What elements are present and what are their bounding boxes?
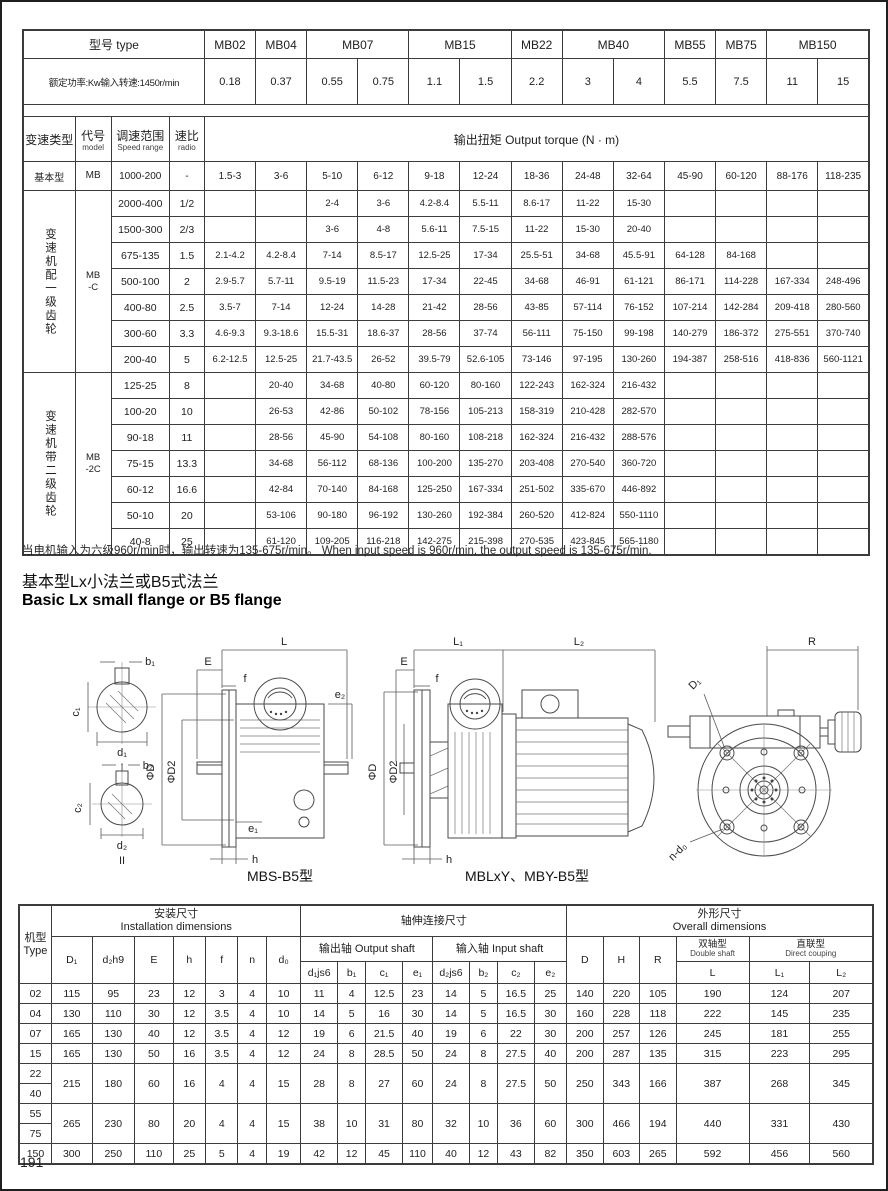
dimension-value-cell: 12 (337, 1144, 365, 1165)
dimension-value-cell: 181 (749, 1024, 810, 1044)
double-shaft-header: 双轴型 Double shaft (676, 937, 749, 962)
torque-value-cell: 248-496 (818, 269, 869, 295)
torque-value-cell: 260-520 (511, 503, 562, 529)
torque-value-cell: 9.5-19 (307, 269, 358, 295)
torque-value-cell: 37-74 (460, 321, 511, 347)
torque-value-cell: 412-824 (562, 503, 613, 529)
dim-label-f-v2: f (435, 673, 439, 685)
dimension-value-cell: 124 (749, 984, 810, 1004)
torque-value-cell: 12.5-25 (256, 347, 307, 373)
dim-label-e2: e₂ (335, 689, 345, 701)
torque-value-cell: 370-740 (818, 321, 869, 347)
ratio-cell: 13.3 (169, 451, 204, 477)
dimension-value-cell: 3.5 (206, 1044, 238, 1064)
torque-value-cell: 26-53 (256, 399, 307, 425)
dimension-value-cell: 40 (433, 1144, 470, 1165)
torque-value-cell: 50-102 (358, 399, 409, 425)
torque-value-cell: 107-214 (664, 295, 715, 321)
col-header-d2js6: d₂js6 (433, 962, 470, 984)
technical-drawings: b₁ c₁ d₁ I b₂ c₂ d₂ II (22, 632, 870, 890)
torque-value-cell: 108-218 (460, 425, 511, 451)
dim-label-h-v2: h (446, 854, 452, 866)
torque-value-cell: 84-168 (358, 477, 409, 503)
dimension-value-cell: 27.5 (498, 1044, 535, 1064)
torque-value-cell: 15.5-31 (307, 321, 358, 347)
torque-value-cell: 86-171 (664, 269, 715, 295)
dim-label-d1: d₁ (117, 747, 127, 759)
torque-value-cell (664, 425, 715, 451)
dimension-value-cell: 27 (366, 1064, 403, 1104)
dimension-value-cell: 12 (173, 1004, 205, 1024)
dimension-value-cell: 228 (603, 1004, 640, 1024)
dimension-value-cell: 82 (534, 1144, 566, 1165)
torque-value-cell: 42-86 (307, 399, 358, 425)
col-header-c2: c₂ (498, 962, 535, 984)
torque-value-cell: 96-192 (358, 503, 409, 529)
dim-label-E-v1: E (204, 656, 211, 668)
dim-label-e1: e₁ (248, 823, 258, 835)
torque-value-cell: 2-4 (307, 191, 358, 217)
dimension-value-cell: 160 (567, 1004, 604, 1024)
speed-range-cell: 100-20 (111, 399, 169, 425)
dimension-value-cell: 5 (337, 1004, 365, 1024)
model-type-cell: 07 (19, 1024, 51, 1044)
dimension-value-cell: 28 (301, 1064, 338, 1104)
section-heading-en: Basic Lx small flange or B5 flange (22, 592, 282, 610)
dimension-value-cell: 22 (498, 1024, 535, 1044)
dimension-value-cell: 4 (238, 1104, 266, 1144)
torque-value-cell: 34-68 (256, 451, 307, 477)
dim-label-E-v2: E (400, 656, 407, 668)
torque-value-cell: 75-150 (562, 321, 613, 347)
torque-value-cell: 550-1110 (613, 503, 664, 529)
model-header: MB55 (664, 30, 715, 59)
torque-value-cell: 142-284 (716, 295, 767, 321)
torque-value-cell: 560-1121 (818, 347, 869, 373)
torque-value-cell (818, 399, 869, 425)
model-type-header: 型号 type (23, 30, 204, 59)
dimension-value-cell: 265 (51, 1104, 92, 1144)
dimension-value-cell: 300 (51, 1144, 92, 1165)
speed-range-cell: 300-60 (111, 321, 169, 347)
shaft-section-1-drawing: b₁ c₁ d₁ I (70, 656, 156, 774)
torque-value-cell (818, 243, 869, 269)
torque-value-cell (204, 503, 255, 529)
code-header-en: model (76, 144, 111, 152)
code-header-cn: 代号 (76, 127, 111, 144)
torque-value-cell: 5.7-11 (256, 269, 307, 295)
dimension-value-cell: 223 (749, 1044, 810, 1064)
dimension-value-cell: 126 (640, 1024, 677, 1044)
torque-value-cell (716, 373, 767, 399)
dim-label-d2: d₂ (117, 840, 127, 852)
dimension-value-cell: 28.5 (366, 1044, 403, 1064)
torque-value-cell (818, 425, 869, 451)
power-cell: 5.5 (664, 59, 715, 105)
output-shaft-header: 输出轴 Output shaft (301, 937, 433, 962)
dim-label-f-v1: f (243, 673, 247, 685)
torque-value-cell (716, 425, 767, 451)
ratio-cell: 2/3 (169, 217, 204, 243)
torque-value-cell (716, 451, 767, 477)
dimension-value-cell: 40 (135, 1024, 174, 1044)
torque-value-cell: 251-502 (511, 477, 562, 503)
power-cell: 7.5 (716, 59, 767, 105)
dimension-value-cell: 207 (810, 984, 873, 1004)
section-label-text: 变速机配一级齿轮 (44, 228, 56, 336)
dimension-value-cell: 118 (640, 1004, 677, 1024)
torque-value-cell (204, 425, 255, 451)
torque-value-cell (716, 503, 767, 529)
model-header: MB02 (204, 30, 255, 59)
ratio-cell: 10 (169, 399, 204, 425)
col-header-h: h (173, 937, 205, 984)
section-label: 变速机带二级齿轮 (23, 373, 75, 556)
dimension-value-cell: 3.5 (206, 1004, 238, 1024)
torque-value-cell: 17-34 (460, 243, 511, 269)
speed-type-header: 变速类型 (23, 117, 75, 162)
torque-value-cell: 162-324 (511, 425, 562, 451)
torque-value-cell: 20-40 (256, 373, 307, 399)
torque-value-cell (818, 217, 869, 243)
torque-value-cell: 100-200 (409, 451, 460, 477)
ratio-cell: 20 (169, 503, 204, 529)
model-header: MB150 (767, 30, 869, 59)
torque-value-cell: 32-64 (613, 162, 664, 191)
dimension-value-cell: 15 (266, 1104, 301, 1144)
torque-value-cell: 61-121 (613, 269, 664, 295)
ratio-cell: 1.5 (169, 243, 204, 269)
dimension-value-cell: 11 (301, 984, 338, 1004)
dimension-value-cell: 4 (206, 1064, 238, 1104)
dimension-value-cell: 345 (810, 1064, 873, 1104)
dimension-value-cell: 40 (402, 1024, 432, 1044)
col-header-n: n (238, 937, 266, 984)
direct-coupling-en: Direct couping (750, 950, 872, 958)
torque-value-cell: 114-228 (716, 269, 767, 295)
torque-value-cell: 4-8 (358, 217, 409, 243)
dimension-value-cell: 145 (749, 1004, 810, 1024)
col-header-D1: D₁ (51, 937, 92, 984)
torque-value-cell: 78-156 (409, 399, 460, 425)
dimension-value-cell: 4 (238, 1044, 266, 1064)
dim-label-L: L (281, 636, 287, 648)
table-spacer (23, 105, 869, 117)
model-header: MB07 (307, 30, 409, 59)
torque-value-cell: 12.5-25 (409, 243, 460, 269)
torque-value-cell: 84-168 (716, 243, 767, 269)
dimension-value-cell: 440 (676, 1104, 749, 1144)
dimension-value-cell: 180 (92, 1064, 135, 1104)
dimension-value-cell: 3.5 (206, 1024, 238, 1044)
torque-value-cell: 158-319 (511, 399, 562, 425)
torque-value-cell: 15-30 (562, 217, 613, 243)
dimension-value-cell: 115 (51, 984, 92, 1004)
col-header-d2h9: d₂h9 (92, 937, 135, 984)
section-code: MB -2C (75, 373, 111, 556)
speed-note: 当电机输入为六级960r/min时，输出转速为135-675r/min。 Whe… (22, 542, 652, 558)
torque-value-cell: 7.5-15 (460, 217, 511, 243)
col-header-e2: e₂ (534, 962, 566, 984)
dimension-value-cell: 80 (135, 1104, 174, 1144)
col-header-H: H (603, 937, 640, 984)
dimension-value-cell: 130 (92, 1024, 135, 1044)
dimension-value-cell: 343 (603, 1064, 640, 1104)
model-type-cell: 75 (19, 1124, 51, 1144)
catalog-page: 型号 type MB02 MB04 MB07 MB15 MB22 MB40 MB… (0, 0, 888, 1191)
dimension-value-cell: 10 (266, 1004, 301, 1024)
section-label: 变速机配一级齿轮 (23, 191, 75, 373)
dimension-value-cell: 45 (366, 1144, 403, 1165)
dim-label-phiD2-v2: ΦD2 (388, 761, 400, 784)
torque-value-cell: 60-120 (409, 373, 460, 399)
dimension-value-cell: 12.5 (366, 984, 403, 1004)
range-header-en: Speed range (112, 144, 169, 152)
speed-range-cell: 200-40 (111, 347, 169, 373)
torque-value-cell: 360-720 (613, 451, 664, 477)
section-code: MB (75, 162, 111, 191)
dimension-value-cell: 60 (534, 1104, 566, 1144)
speed-range-cell: 125-25 (111, 373, 169, 399)
torque-value-cell: 25.5-51 (511, 243, 562, 269)
torque-value-cell (716, 477, 767, 503)
power-cell: 0.75 (358, 59, 409, 105)
section-label-text: 变速机带二级齿轮 (44, 410, 56, 518)
torque-value-cell: 22-45 (460, 269, 511, 295)
torque-value-cell: 192-384 (460, 503, 511, 529)
dimension-value-cell: 21.5 (366, 1024, 403, 1044)
torque-value-cell (664, 503, 715, 529)
torque-value-cell: 216-432 (613, 373, 664, 399)
model-type-cell: 40 (19, 1084, 51, 1104)
torque-value-cell: 11-22 (511, 217, 562, 243)
dimension-value-cell: 42 (301, 1144, 338, 1165)
dimension-value-cell: 456 (749, 1144, 810, 1165)
dimension-value-cell: 4 (206, 1104, 238, 1144)
dimension-value-cell: 200 (567, 1044, 604, 1064)
col-header-D: D (567, 937, 604, 984)
col-header-E: E (135, 937, 174, 984)
speed-range-cell: 75-15 (111, 451, 169, 477)
torque-value-cell (767, 451, 818, 477)
dimensions-table: 机型 Type 安装尺寸 Installation dimensions 轴伸连… (18, 904, 874, 1165)
torque-value-cell: 18-36 (511, 162, 562, 191)
dimension-value-cell: 166 (640, 1064, 677, 1104)
torque-value-cell (767, 373, 818, 399)
overall-dims-en: Overall dimensions (567, 921, 872, 934)
torque-value-cell: 162-324 (562, 373, 613, 399)
torque-value-cell: 335-670 (562, 477, 613, 503)
power-cell: 4 (613, 59, 664, 105)
dimension-value-cell: 36 (498, 1104, 535, 1144)
torque-value-cell: 90-180 (307, 503, 358, 529)
torque-value-cell (204, 191, 255, 217)
dim-label-c1: c₁ (70, 707, 82, 717)
torque-value-cell: 73-146 (511, 347, 562, 373)
dim-label-phiD-v2: ΦD (367, 764, 379, 781)
dimension-value-cell: 110 (92, 1004, 135, 1024)
dimension-value-cell: 165 (51, 1024, 92, 1044)
torque-value-cell: 26-52 (358, 347, 409, 373)
torque-value-cell (716, 399, 767, 425)
torque-value-cell: 15-30 (613, 191, 664, 217)
section-label: 基本型 (23, 162, 75, 191)
col-header-f: f (206, 937, 238, 984)
dimension-value-cell: 80 (402, 1104, 432, 1144)
dimension-value-cell: 4 (238, 984, 266, 1004)
torque-value-cell: 43-85 (511, 295, 562, 321)
model-header: MB15 (409, 30, 511, 59)
dimension-value-cell: 10 (266, 984, 301, 1004)
dimension-value-cell: 43 (498, 1144, 535, 1165)
dimension-value-cell: 8 (337, 1044, 365, 1064)
torque-value-cell (767, 243, 818, 269)
dimension-value-cell: 130 (51, 1004, 92, 1024)
torque-value-cell: 12-24 (307, 295, 358, 321)
installation-dims-cn: 安装尺寸 (52, 908, 300, 921)
torque-value-cell (767, 529, 818, 556)
ratio-cell: 16.6 (169, 477, 204, 503)
dimension-value-cell: 19 (433, 1024, 470, 1044)
power-cell: 11 (767, 59, 818, 105)
installation-dims-en: Installation dimensions (52, 921, 300, 934)
double-shaft-en: Double shaft (677, 950, 749, 958)
torque-value-cell: 2.9-5.7 (204, 269, 255, 295)
dimension-value-cell: 16 (173, 1044, 205, 1064)
dimension-value-cell: 19 (266, 1144, 301, 1165)
dimension-value-cell: 30 (135, 1004, 174, 1024)
torque-value-cell: 8.6-17 (511, 191, 562, 217)
torque-value-cell (664, 451, 715, 477)
torque-value-cell (664, 529, 715, 556)
dimension-value-cell: 31 (366, 1104, 403, 1144)
dimension-value-cell: 24 (433, 1064, 470, 1104)
torque-value-cell: 125-250 (409, 477, 460, 503)
dimension-value-cell: 135 (640, 1044, 677, 1064)
dimension-value-cell: 220 (603, 984, 640, 1004)
model-type-cell: 15 (19, 1044, 51, 1064)
dimension-value-cell: 200 (567, 1024, 604, 1044)
torque-value-cell: 118-235 (818, 162, 869, 191)
dimension-value-cell: 105 (640, 984, 677, 1004)
torque-value-cell: 167-334 (460, 477, 511, 503)
torque-value-cell: 275-551 (767, 321, 818, 347)
torque-value-cell: 28-56 (460, 295, 511, 321)
col-header-d1js6: d₁js6 (301, 962, 338, 984)
dimension-value-cell: 23 (402, 984, 432, 1004)
torque-value-cell: 88-176 (767, 162, 818, 191)
torque-value-cell: 28-56 (409, 321, 460, 347)
range-header-cn: 调速范围 (112, 127, 169, 144)
dimension-value-cell: 8 (469, 1064, 497, 1104)
torque-value-cell (767, 399, 818, 425)
dimension-value-cell: 38 (301, 1104, 338, 1144)
torque-value-cell: 5.6-11 (409, 217, 460, 243)
dimension-value-cell: 32 (433, 1104, 470, 1144)
torque-value-cell: 17-34 (409, 269, 460, 295)
torque-value-cell: 3-6 (307, 217, 358, 243)
col-header-L2: L₂ (810, 962, 873, 984)
dimension-value-cell: 215 (51, 1064, 92, 1104)
torque-value-cell (664, 399, 715, 425)
dim-label-D1: D₁ (687, 675, 704, 692)
dim-label-b1: b₁ (145, 656, 155, 668)
torque-value-cell: 52.6-105 (460, 347, 511, 373)
torque-value-cell: 7-14 (256, 295, 307, 321)
speed-range-cell: 675-135 (111, 243, 169, 269)
torque-value-cell: 70-140 (307, 477, 358, 503)
power-cell: 0.18 (204, 59, 255, 105)
torque-value-cell: 4.6-9.3 (204, 321, 255, 347)
torque-value-cell: 57-114 (562, 295, 613, 321)
ratio-cell: 2.5 (169, 295, 204, 321)
ratio-cell: 3.3 (169, 321, 204, 347)
dimension-value-cell: 603 (603, 1144, 640, 1165)
torque-value-cell (818, 451, 869, 477)
torque-value-cell (256, 217, 307, 243)
dim-label-c2: c₂ (72, 803, 84, 813)
mbs-b5-drawing: ΦD ΦD2 L E f (145, 636, 352, 884)
drawing-caption-mblxy-b5: MBLxY、MBY-B5型 (465, 868, 589, 884)
torque-value-cell: 24-48 (562, 162, 613, 191)
speed-range-cell: 60-12 (111, 477, 169, 503)
dimension-value-cell: 16.5 (498, 1004, 535, 1024)
dimension-value-cell: 25 (173, 1144, 205, 1165)
torque-value-cell: 270-540 (562, 451, 613, 477)
speed-range-cell: 2000-400 (111, 191, 169, 217)
power-cell: 15 (818, 59, 869, 105)
torque-value-cell: 21.7-43.5 (307, 347, 358, 373)
power-cell: 2.2 (511, 59, 562, 105)
torque-value-cell: 203-408 (511, 451, 562, 477)
dimension-value-cell: 265 (640, 1144, 677, 1165)
dimension-value-cell: 12 (469, 1144, 497, 1165)
torque-value-cell (204, 373, 255, 399)
dim-label-L2: L₂ (574, 636, 584, 648)
torque-value-cell (818, 529, 869, 556)
torque-value-cell: 76-152 (613, 295, 664, 321)
ratio-cell: - (169, 162, 204, 191)
dimension-value-cell: 12 (173, 1024, 205, 1044)
torque-value-cell: 21-42 (409, 295, 460, 321)
torque-value-cell (767, 477, 818, 503)
dimension-value-cell: 331 (749, 1104, 810, 1144)
ratio-header: 速比 radio (169, 117, 204, 162)
torque-value-cell (256, 191, 307, 217)
torque-value-cell: 56-111 (511, 321, 562, 347)
dimension-value-cell: 24 (301, 1044, 338, 1064)
torque-value-cell: 2.1-4.2 (204, 243, 255, 269)
dimension-value-cell: 466 (603, 1104, 640, 1144)
torque-value-cell (818, 477, 869, 503)
dimension-value-cell: 14 (433, 984, 470, 1004)
dimension-value-cell: 257 (603, 1024, 640, 1044)
torque-value-cell: 28-56 (256, 425, 307, 451)
dimension-value-cell: 23 (135, 984, 174, 1004)
torque-value-cell: 20-40 (613, 217, 664, 243)
dim-label-L1: L₁ (453, 636, 463, 648)
dimension-value-cell: 245 (676, 1024, 749, 1044)
dim-label-h-v1: h (252, 854, 258, 866)
dimension-value-cell: 4 (238, 1064, 266, 1104)
dimension-value-cell: 16 (366, 1004, 403, 1024)
dimension-value-cell: 50 (402, 1044, 432, 1064)
dimension-value-cell: 16.5 (498, 984, 535, 1004)
torque-value-cell: 209-418 (767, 295, 818, 321)
input-shaft-header: 输入轴 Input shaft (433, 937, 567, 962)
dimension-value-cell: 30 (534, 1024, 566, 1044)
dimension-value-cell: 235 (810, 1004, 873, 1024)
